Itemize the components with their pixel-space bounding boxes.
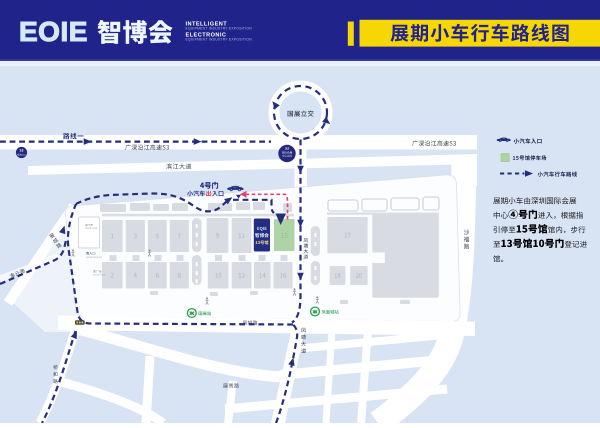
svg-text:EQUIPMENT INDUSTRY EXPOSITION: EQUIPMENT INDUSTRY EXPOSITION xyxy=(186,38,253,42)
svg-text:EQUIPMENT INDUSTRY EXPOSITION: EQUIPMENT INDUSTRY EXPOSITION xyxy=(186,27,253,31)
svg-text:EOIE: EOIE xyxy=(19,16,88,47)
